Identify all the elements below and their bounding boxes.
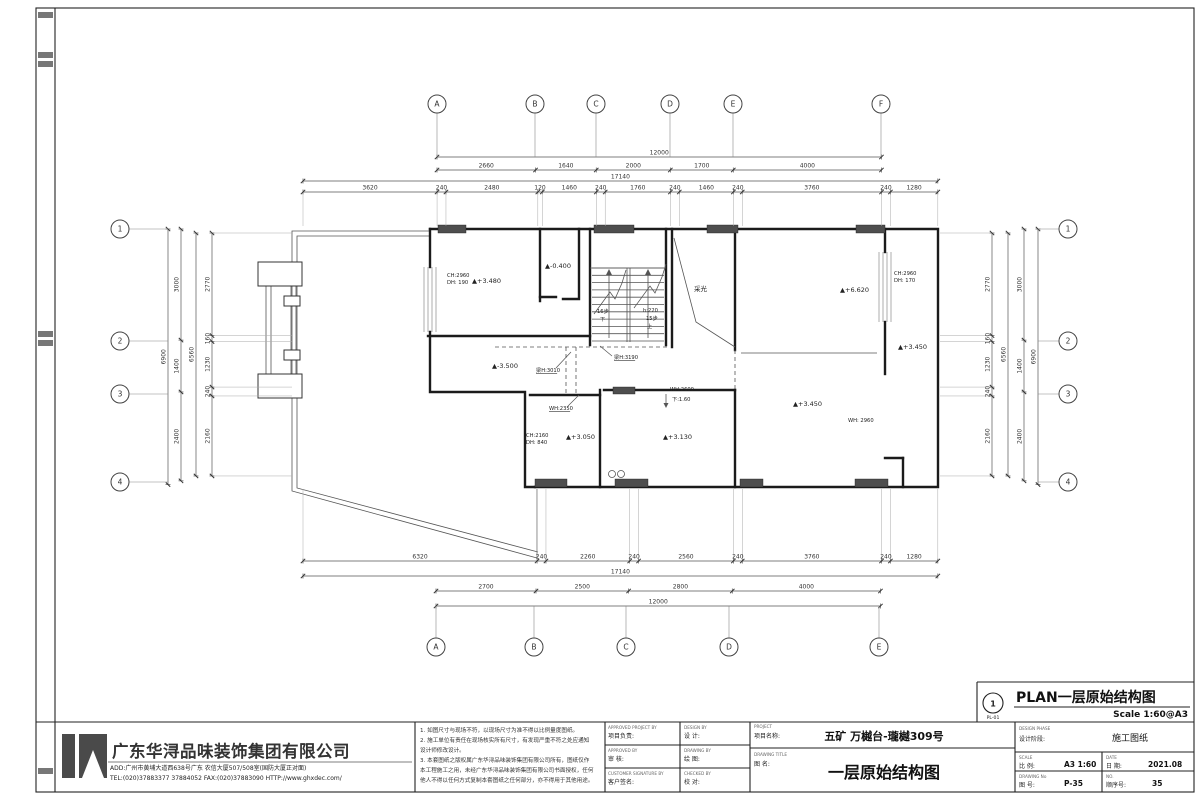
dim-value: 160 bbox=[205, 333, 212, 345]
detail-code: PL-01 bbox=[987, 715, 1000, 721]
dim-value: 2160 bbox=[985, 428, 992, 443]
company-logo bbox=[62, 734, 107, 778]
grid-label: 4 bbox=[118, 478, 123, 487]
approved-by-label: APPROVED BY bbox=[608, 748, 638, 753]
dim-value: 6560 bbox=[189, 347, 196, 362]
drawing-by-label: DRAWING BY bbox=[684, 748, 711, 753]
approved-by: 审 核: bbox=[608, 755, 624, 763]
plan-annotation: 16步 bbox=[597, 308, 609, 315]
grid-label: D bbox=[726, 643, 732, 652]
dim-value: 12000 bbox=[649, 599, 668, 606]
design-by: 设 计: bbox=[684, 732, 700, 740]
dim-value: 3000 bbox=[174, 277, 181, 292]
dim-value: 6900 bbox=[161, 349, 168, 364]
dim-value: 2800 bbox=[673, 584, 688, 591]
dim-value: 1230 bbox=[985, 356, 992, 371]
dim-value: 2000 bbox=[626, 163, 641, 170]
drawing-sheet: 1 PL-01 PLAN一层原始结构图 Scale 1:60@A3 广东华浔品味… bbox=[0, 0, 1200, 800]
dim-value: 1460 bbox=[562, 185, 577, 192]
design-phase-label-zh: 设计阶段: bbox=[1019, 735, 1045, 743]
customer-signature-label: CUSTOMER SIGNATURE BY bbox=[608, 771, 664, 776]
plan-annotation: DH: 840 bbox=[526, 440, 547, 446]
scale-value: A3 1:60 bbox=[1064, 760, 1096, 769]
dim-value: 1640 bbox=[558, 163, 573, 170]
drawing-no-value: P-35 bbox=[1064, 779, 1083, 788]
dim-value: 120 bbox=[534, 185, 546, 192]
dim-value: 2500 bbox=[575, 584, 590, 591]
dim-value: 240 bbox=[595, 185, 607, 192]
skylight-void bbox=[674, 238, 877, 353]
customer-signature: 客户签名: bbox=[608, 778, 634, 786]
dim-value: 2660 bbox=[479, 163, 494, 170]
note-line: 本工程施工之用，未经广东华浔品味装饰集团有限公司书面授权，任何 bbox=[420, 766, 594, 774]
note-line: 设计师修改设计。 bbox=[420, 746, 465, 754]
no-label-en: NO. bbox=[1106, 774, 1114, 779]
dim-value: 3620 bbox=[362, 185, 377, 192]
no-label-zh: 顺序号: bbox=[1106, 781, 1126, 789]
dim-value: 4000 bbox=[800, 163, 815, 170]
plan-annotation: ▲+3.450 bbox=[898, 343, 927, 351]
sheet-frame bbox=[36, 8, 1194, 792]
drawing-no-label-en: DRAWING No bbox=[1019, 774, 1047, 779]
project-label-en: PROJECT bbox=[754, 724, 773, 729]
generated-layer: 1200026601640200017004000171403620240248… bbox=[111, 95, 1077, 656]
dim-value: 6320 bbox=[412, 554, 427, 561]
grid-label: B bbox=[531, 643, 536, 652]
dim-value: 240 bbox=[880, 185, 892, 192]
dim-value: 1760 bbox=[630, 185, 645, 192]
scale-label-zh: 比 例: bbox=[1019, 762, 1035, 770]
dim-value: 240 bbox=[205, 386, 212, 398]
plan-scale: Scale 1:60@A3 bbox=[1113, 710, 1188, 720]
dim-value: 160 bbox=[985, 333, 992, 345]
plan-annotation: WH: 2960 bbox=[848, 418, 874, 424]
note-line: 1. 如图尺寸与现场不符，以现场尺寸为准不得以比例量度图纸。 bbox=[420, 726, 578, 734]
plan-title-block: 1 PL-01 PLAN一层原始结构图 Scale 1:60@A3 bbox=[983, 689, 1190, 721]
drawing-no-label-zh: 图 号: bbox=[1019, 782, 1035, 789]
dim-value: 17140 bbox=[611, 174, 630, 181]
grid-label: 2 bbox=[118, 337, 123, 346]
stair-up-arrow bbox=[645, 269, 651, 275]
stair-up-arrow bbox=[606, 269, 612, 275]
grid-label: C bbox=[593, 100, 598, 109]
plan-annotation: ▲-3.500 bbox=[492, 362, 518, 370]
dim-value: 17140 bbox=[611, 569, 630, 576]
grid-label: 2 bbox=[1066, 337, 1071, 346]
dim-value: 6900 bbox=[1031, 349, 1038, 364]
dim-value: 240 bbox=[669, 185, 681, 192]
checked-by: 校 对: bbox=[684, 778, 700, 786]
dim-value: 240 bbox=[536, 554, 548, 561]
general-notes: 1. 如图尺寸与现场不符，以现场尺寸为准不得以比例量度图纸。 2. 施工单位有责… bbox=[420, 726, 594, 784]
scale-label-en: SCALE bbox=[1019, 755, 1033, 760]
date-label-en: DATE bbox=[1106, 755, 1117, 760]
dim-value: 240 bbox=[880, 554, 892, 561]
grid-label: 4 bbox=[1066, 478, 1071, 487]
plan-annotation: ▲+3.050 bbox=[566, 433, 595, 441]
plan-annotation: h:220 bbox=[643, 308, 658, 314]
grid-label: A bbox=[433, 643, 439, 652]
grid-label: 1 bbox=[118, 225, 123, 234]
dim-value: 1280 bbox=[906, 554, 921, 561]
grid-label: C bbox=[623, 643, 628, 652]
plan-annotation: ▲+3.480 bbox=[472, 277, 501, 285]
fold-marks bbox=[38, 12, 53, 774]
dim-value: 240 bbox=[732, 554, 744, 561]
detail-number: 1 bbox=[990, 700, 996, 709]
dim-value: 3000 bbox=[1017, 277, 1024, 292]
walls bbox=[428, 229, 938, 487]
plan-annotation: WH:2600 bbox=[670, 387, 694, 393]
dim-value: 2160 bbox=[205, 428, 212, 443]
company-contact: TEL:(020)37883377 37884052 FAX:(020)3788… bbox=[109, 775, 343, 782]
note-line: 2. 施工单位有责任在现场核实所有尺寸，有发现严重不符之处应通知 bbox=[420, 736, 590, 744]
company-address: ADD:广州市黄埔大道西638号广东 农信大厦507/508室(国防大厦正对面) bbox=[110, 764, 306, 772]
dim-value: 1400 bbox=[1017, 358, 1024, 373]
sheet-info-block: DESIGN PHASE 设计阶段: 施工图纸 SCALE 比 例: A3 1:… bbox=[1019, 726, 1182, 789]
note-line: 他人不得以任何方式复制本套图纸之任何部分，亦不得用于其他用途。 bbox=[420, 776, 593, 784]
yard-boundary bbox=[292, 231, 538, 558]
plan-annotation: WH:2350 bbox=[549, 406, 573, 412]
dim-value: 1280 bbox=[906, 185, 921, 192]
plan-annotation: 上 bbox=[647, 322, 652, 330]
grid-label: 3 bbox=[1066, 390, 1071, 399]
project-label-zh: 项目名称: bbox=[754, 732, 780, 740]
plan-annotation: CH:2960 bbox=[447, 273, 469, 279]
grid-label: D bbox=[667, 100, 673, 109]
plan-annotation: 采光 bbox=[694, 284, 708, 293]
dim-value: 2260 bbox=[580, 554, 595, 561]
grid-label: E bbox=[877, 643, 882, 652]
dim-value: 12000 bbox=[650, 150, 669, 157]
dim-value: 3760 bbox=[804, 185, 819, 192]
design-by-label: DESIGN BY bbox=[684, 725, 707, 730]
dim-value: 240 bbox=[436, 185, 448, 192]
entrance-gate bbox=[258, 262, 302, 398]
plan-annotation: ▲+3.450 bbox=[793, 400, 822, 408]
date-label-zh: 日 期: bbox=[1106, 762, 1122, 770]
company-info: 广东华浔品味装饰集团有限公司 ADD:广州市黄埔大道西638号广东 农信大厦50… bbox=[108, 741, 412, 782]
dim-value: 2400 bbox=[174, 429, 181, 444]
drawing-title-label-en: DRAWING TITLE bbox=[754, 752, 787, 757]
dim-value: 2700 bbox=[478, 584, 493, 591]
staircase bbox=[590, 264, 666, 342]
date-value: 2021.08 bbox=[1148, 760, 1182, 769]
plan-annotation: 下 bbox=[600, 316, 605, 323]
slope-arrow bbox=[664, 403, 669, 408]
plan-annotation: CH:2960 bbox=[894, 271, 916, 277]
dim-value: 2770 bbox=[205, 276, 212, 291]
plan-annotation: CH:2160 bbox=[526, 433, 548, 439]
plan-annotation: ▲-0.400 bbox=[545, 262, 571, 270]
dim-value: 2770 bbox=[985, 276, 992, 291]
dim-value: 240 bbox=[985, 386, 992, 398]
grid-label: B bbox=[532, 100, 537, 109]
dim-value: 1700 bbox=[694, 163, 709, 170]
dim-value: 4000 bbox=[799, 584, 814, 591]
dim-value: 240 bbox=[628, 554, 640, 561]
note-line: 3. 本套图纸之版权属广东华浔品味装饰集团有限公司所有，图纸仅作 bbox=[420, 756, 590, 764]
drawing-by: 绘 图: bbox=[684, 755, 700, 763]
plan-annotation: DH: 190 bbox=[447, 280, 468, 286]
project-name: 五矿 万樾台-瓏樾309号 bbox=[824, 729, 943, 743]
concrete-columns bbox=[438, 225, 888, 487]
approvals: APPROVED PROJECT BY 项目负责: APPROVED BY 审 … bbox=[608, 725, 711, 786]
plan-annotation: ▲+3.130 bbox=[663, 433, 692, 441]
grid-label: 3 bbox=[118, 390, 123, 399]
approved-project-by: 项目负责: bbox=[608, 732, 634, 740]
plan-annotation: ▲+6.620 bbox=[840, 286, 869, 294]
no-value: 35 bbox=[1152, 779, 1162, 788]
dim-value: 3760 bbox=[804, 554, 819, 561]
dim-value: 6560 bbox=[1001, 347, 1008, 362]
company-name: 广东华浔品味装饰集团有限公司 bbox=[112, 741, 350, 761]
dim-value: 1230 bbox=[205, 356, 212, 371]
dim-value: 2400 bbox=[1017, 429, 1024, 444]
dim-value: 240 bbox=[732, 185, 744, 192]
plan-annotation: 15步 bbox=[646, 315, 658, 322]
drawing-title-label-zh: 图 名: bbox=[754, 760, 770, 768]
grid-label: F bbox=[879, 100, 883, 109]
grid-label: 1 bbox=[1066, 225, 1071, 234]
grid-label: E bbox=[731, 100, 736, 109]
dim-value: 2480 bbox=[484, 185, 499, 192]
plan-annotation: DH: 170 bbox=[894, 278, 915, 284]
dim-value: 2560 bbox=[678, 554, 693, 561]
dim-value: 1400 bbox=[174, 358, 181, 373]
plan-annotation: 下:1.60 bbox=[672, 396, 691, 403]
plan-annotation: 梁H:3190 bbox=[614, 353, 638, 361]
floor-plan-canvas: 1 PL-01 PLAN一层原始结构图 Scale 1:60@A3 广东华浔品味… bbox=[0, 0, 1200, 800]
dim-value: 1460 bbox=[699, 185, 714, 192]
beam-dashed-lines bbox=[495, 347, 735, 393]
plan-title: PLAN一层原始结构图 bbox=[1016, 689, 1156, 706]
checked-by-label: CHECKED BY bbox=[684, 771, 711, 776]
design-phase-label-en: DESIGN PHASE bbox=[1019, 726, 1051, 731]
design-phase-value: 施工图纸 bbox=[1112, 732, 1148, 744]
door-circles bbox=[609, 394, 669, 478]
drawing-title: 一层原始结构图 bbox=[828, 763, 940, 782]
grid-label: A bbox=[434, 100, 440, 109]
project-cell: PROJECT 项目名称: 五矿 万樾台-瓏樾309号 DRAWING TITL… bbox=[754, 724, 944, 782]
approved-project-by-label: APPROVED PROJECT BY bbox=[608, 725, 657, 730]
